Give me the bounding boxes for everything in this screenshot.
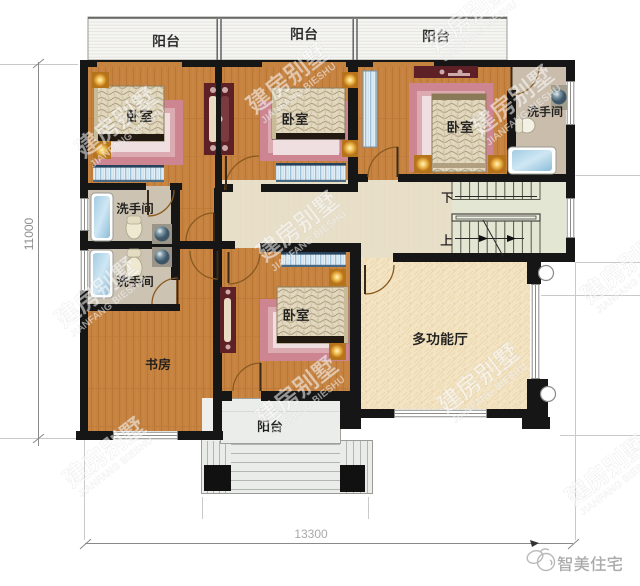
svg-text:13300: 13300 xyxy=(294,527,328,541)
svg-text:11000: 11000 xyxy=(22,217,36,250)
